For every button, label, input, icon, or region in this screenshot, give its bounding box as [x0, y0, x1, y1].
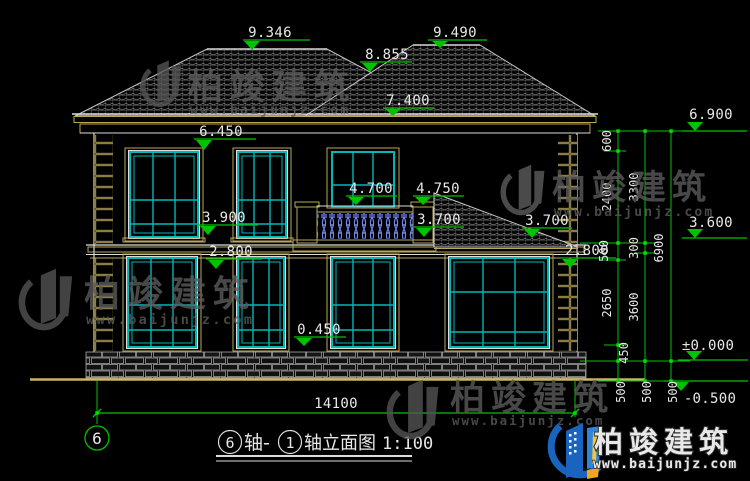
- window-ground-4: [445, 254, 553, 351]
- balcony-door-window: [327, 148, 399, 208]
- stone-base: [86, 352, 586, 378]
- svg-text:8.855: 8.855: [365, 47, 409, 63]
- svg-text:500: 500: [666, 381, 680, 403]
- elevation-drawing: 9.346 9.490 8.855 7.400 6.900 6.450 4.70…: [0, 0, 750, 481]
- svg-text:轴-: 轴-: [244, 432, 270, 454]
- svg-text:6: 6: [92, 429, 102, 448]
- svg-text:6.450: 6.450: [199, 124, 243, 140]
- svg-text:柏竣建筑: 柏竣建筑: [552, 168, 712, 208]
- svg-text:4.750: 4.750: [416, 181, 460, 197]
- svg-text:6900: 6900: [652, 234, 666, 263]
- watermark-logo-icon: [390, 380, 439, 436]
- svg-text:500: 500: [614, 381, 628, 403]
- svg-text:柏竣建筑: 柏竣建筑: [188, 67, 356, 108]
- svg-text:450: 450: [617, 342, 631, 364]
- svg-text:14100: 14100: [314, 396, 358, 412]
- svg-text:www.baijunjz.com: www.baijunjz.com: [554, 205, 714, 220]
- svg-text:3.700: 3.700: [417, 212, 461, 228]
- svg-text:9.490: 9.490: [433, 25, 477, 41]
- watermark-mid-left: 柏竣建筑 www.baijunjz.com: [22, 269, 256, 328]
- marker-0000: ±0.000: [678, 338, 748, 360]
- axis-bubble-6: 6: [85, 426, 109, 450]
- svg-text:500: 500: [640, 381, 654, 403]
- window-upper-2: [231, 148, 293, 242]
- svg-text:300: 300: [627, 237, 641, 259]
- svg-text:0.450: 0.450: [297, 322, 341, 338]
- svg-text:轴立面图: 轴立面图: [304, 433, 376, 454]
- brand-logo: 柏竣建筑 www.baijunjz.com: [551, 423, 737, 479]
- cad-elevation-canvas: 9.346 9.490 8.855 7.400 6.900 6.450 4.70…: [0, 0, 750, 481]
- svg-text:6.900: 6.900: [689, 107, 733, 123]
- svg-text:2.800: 2.800: [209, 244, 253, 260]
- svg-text:3600: 3600: [627, 293, 641, 322]
- svg-text:1: 1: [285, 434, 294, 452]
- window-upper-1: [123, 148, 205, 242]
- balusters: [317, 213, 413, 239]
- svg-text:600: 600: [600, 130, 614, 152]
- marker-0450: 0.450: [294, 322, 346, 346]
- marker-6450: 6.450: [194, 124, 256, 150]
- marker-4700: 4.700: [346, 181, 397, 205]
- marker-9346: 9.346: [243, 25, 310, 50]
- svg-text:7.400: 7.400: [386, 93, 430, 109]
- left-quoins-upper: [94, 135, 113, 244]
- svg-text:500: 500: [597, 240, 611, 262]
- marker-6900: 6.900: [682, 107, 747, 131]
- svg-text:-0.500: -0.500: [684, 391, 736, 407]
- watermark-logo-icon: [503, 165, 544, 213]
- svg-text:4.700: 4.700: [349, 181, 393, 197]
- watermark-logo-icon: [22, 269, 72, 327]
- svg-text:www.baijunjz.com: www.baijunjz.com: [190, 103, 350, 118]
- right-quoins-lower: [558, 258, 577, 351]
- svg-text:3.900: 3.900: [202, 210, 246, 226]
- svg-text:www.baijunjz.com: www.baijunjz.com: [86, 312, 254, 328]
- svg-text:柏竣建筑: 柏竣建筑: [594, 425, 734, 459]
- marker-3900: 3.900: [198, 210, 258, 235]
- svg-text:柏竣建筑: 柏竣建筑: [84, 274, 256, 315]
- svg-text:2650: 2650: [600, 289, 614, 318]
- watermark-top-right: 柏竣建筑 www.baijunjz.com: [503, 165, 714, 220]
- svg-text:www.baijunjz.com: www.baijunjz.com: [593, 457, 737, 472]
- svg-text:9.346: 9.346: [248, 25, 292, 41]
- svg-text:6: 6: [225, 434, 234, 452]
